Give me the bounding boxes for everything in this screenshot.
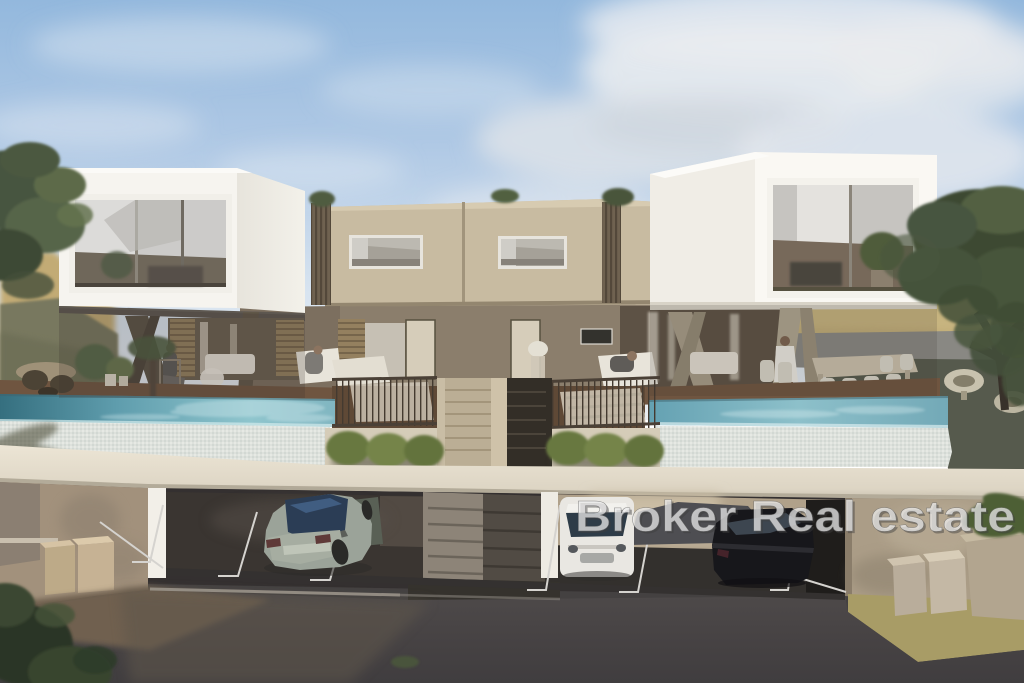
svg-text:Broker Real estate: Broker Real estate <box>575 492 1015 541</box>
